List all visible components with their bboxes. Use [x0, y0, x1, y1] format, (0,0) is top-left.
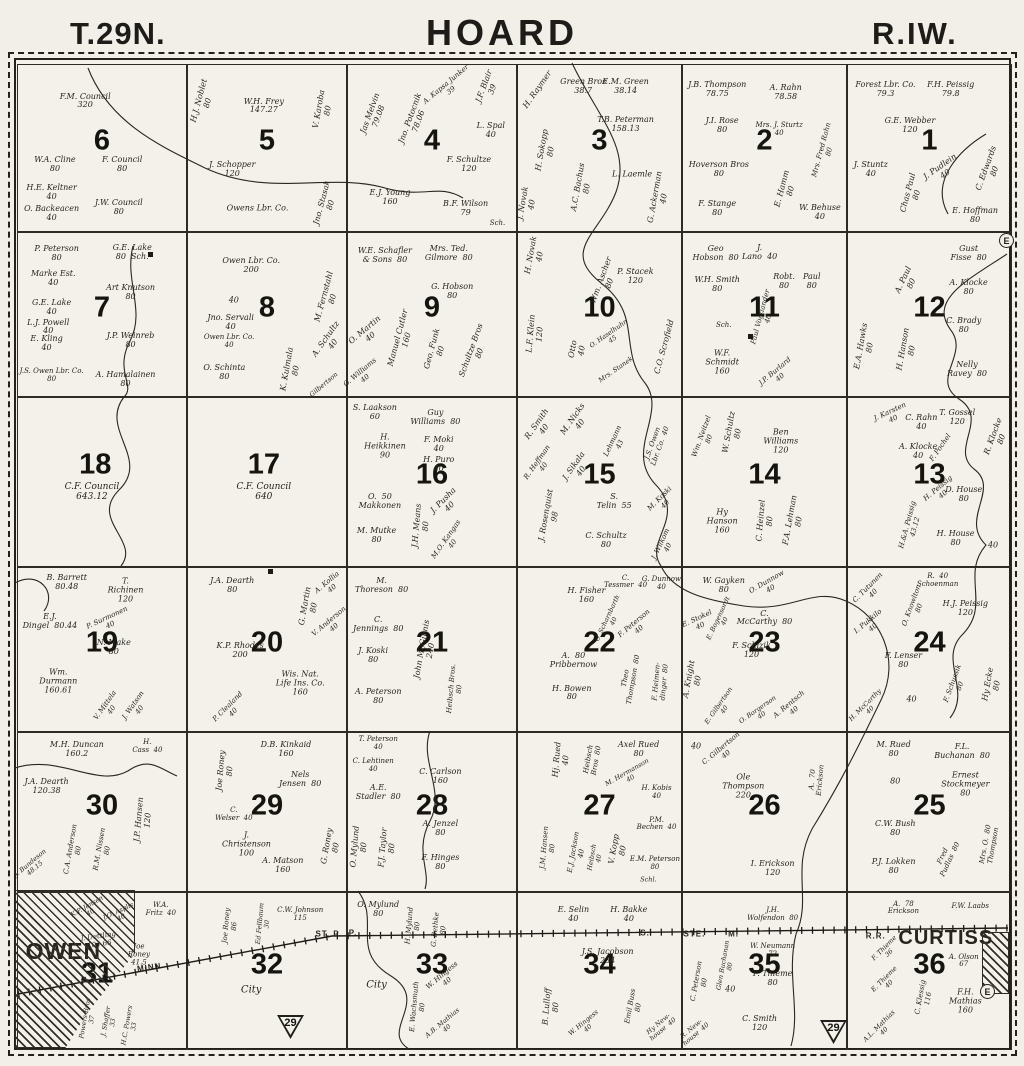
parcel-label: 40	[988, 541, 998, 550]
parcel-label: C. Peterson 80	[690, 960, 712, 1003]
parcel-label: F. Hinges 80	[421, 854, 459, 872]
section-12: 12Gust Fisse 80A. Klocke 80A. Paul 80E.A…	[847, 232, 1012, 397]
section-number: 26	[748, 791, 780, 820]
parcel-label: P.M. Bechen 40	[637, 817, 677, 833]
map-label: M.	[728, 931, 739, 940]
parcel-label: Heibsch Bros. 80	[446, 663, 466, 714]
parcel-label: J.A. Dearth 80	[210, 577, 254, 595]
school-marker	[268, 569, 273, 574]
parcel-label: D. House 80	[945, 486, 982, 504]
highway-number: 29	[820, 1022, 847, 1034]
parcel-label: C. Welser 40	[215, 807, 252, 823]
parcel-label: C. Rahn 40	[905, 414, 937, 432]
parcel-label: G. Ackerman 40	[646, 170, 673, 225]
parcel-label: H. Fisher 160	[567, 587, 605, 605]
parcel-label: G. Roney 80	[320, 827, 344, 866]
parcel-label: Nelly Ravey 80	[947, 361, 987, 379]
section-number: 17	[248, 451, 280, 480]
section-number: 6	[94, 127, 110, 156]
parcel-label: Ben Williams 120	[763, 428, 798, 455]
section-number: 11	[749, 293, 780, 322]
parcel-label: City	[241, 984, 262, 995]
parcel-label: R. Smith 40	[523, 407, 558, 446]
parcel-label: A. Schultz 40	[311, 320, 349, 364]
parcel-label: T. Gossel 120	[939, 409, 975, 427]
parcel-label: J. Stuntz 40	[854, 161, 888, 179]
parcel-label: Wis. Nat. Life Ins. Co. 160	[276, 670, 325, 697]
section-number: 12	[913, 293, 945, 322]
parcel-label: V. Mittela 40	[93, 690, 125, 727]
parcel-label: E. Kling 40	[30, 335, 62, 353]
highway-29-shield: 29	[277, 1015, 304, 1039]
section-number: 9	[424, 293, 440, 322]
parcel-label: G.E. Lake 40	[32, 299, 71, 317]
section-20: 20J.A. Dearth 80G. Martin 80A. Kollia 40…	[187, 567, 347, 732]
parcel-label: O. Williams 40	[343, 358, 384, 396]
parcel-label: Jas Melvin 79.08	[359, 92, 390, 138]
section-23: 23W. Gayken 80O. Dunnow 40C. McCarthy 80…	[682, 567, 847, 732]
parcel-label: H.E. Keltner 40	[26, 184, 76, 202]
parcel-label: J.P. Burlard 40	[757, 356, 797, 393]
parcel-label: Guy Williams 80	[410, 409, 460, 427]
map-label: ST. P.	[315, 931, 341, 940]
section-8: 8Owen Lbr. Co. 20040Jno. Servali 40Owen …	[187, 232, 347, 397]
parcel-label: W. Behuse 40	[799, 204, 841, 222]
parcel-label: A. Kapsa Junker 39	[422, 64, 476, 113]
parcel-label: F.L. Buchanan 80	[934, 743, 990, 761]
section-number: 1	[921, 127, 937, 156]
section-33: 33O. Mylund 80P.H. Mylund 80G. Bethke 80…	[347, 892, 517, 1050]
parcel-label: A. Olson 67	[949, 954, 979, 970]
section-number: 19	[86, 628, 118, 657]
parcel-label: F. Peterson 40	[617, 608, 657, 645]
parcel-label: Joe Roney 80	[215, 750, 236, 792]
section-number: 16	[416, 461, 448, 490]
parcel-label: O. Knowlton 80	[902, 584, 932, 630]
parcel-label: Lehmann 43	[603, 425, 631, 462]
parcel-label: A. Matson 160	[262, 857, 303, 875]
parcel-label: H. Sokopp 80	[535, 129, 560, 174]
parcel-label: G. Bethke 80	[431, 912, 450, 948]
parcel-label: L.F. Klein 120	[525, 314, 546, 354]
parcel-label: L.J. Powell 40	[27, 319, 69, 337]
parcel-label: Nels Jensen 80	[279, 771, 321, 789]
parcel-label: O. Mylund 80	[357, 901, 399, 919]
parcel-label: C.W. Johnson 115	[277, 907, 323, 923]
parcel-label: E. Thieme 40	[870, 965, 904, 999]
parcel-label: C. Edwards 80	[975, 145, 1008, 195]
highway-29-shield: 29	[820, 1020, 847, 1044]
section-number: 5	[259, 127, 275, 156]
section-17: 17C.F. Council 640	[187, 397, 347, 567]
parcel-label: R. New- house 40	[678, 1016, 712, 1048]
parcel-label: Owen Lbr. Co. 40	[204, 334, 254, 350]
parcel-label: M. Rued 80	[876, 741, 910, 759]
parcel-label: J.W. Council 80	[95, 199, 143, 217]
parcel-label: H.J. Peissig 120	[943, 600, 988, 618]
parcel-label: T. Richinen 120	[108, 577, 144, 604]
parcel-label: Ed Fellbaum 30	[255, 903, 273, 946]
parcel-label: Jno. Servali 40	[207, 314, 254, 332]
parcel-label: Sch.	[490, 220, 505, 228]
section-number: 7	[94, 293, 110, 322]
section-number: 29	[251, 791, 283, 820]
parcel-label: F. Schussik 80	[943, 664, 971, 707]
parcel-label: Paul 80	[803, 273, 821, 291]
parcel-label: C. Tutunen 40	[851, 571, 890, 610]
parcel-label: J.H. Means 80	[411, 503, 433, 549]
parcel-label: D.B. Kinkaid 160	[261, 741, 312, 759]
parcel-label: A. Knight 80	[682, 660, 706, 701]
school-marker	[748, 334, 753, 339]
parcel-label: G. Dunnow 40	[642, 576, 681, 592]
parcel-label: C. Smith 120	[742, 1015, 777, 1033]
section-4: 4Jas Melvin 79.08Jno. Potocnik 78.06A. K…	[347, 64, 517, 232]
edge-marker-E: E	[980, 984, 995, 999]
section-27: 27Hj. Rued 40Heibsch Bros 80Axel Rued 80…	[517, 732, 682, 892]
parcel-label: A. 70 Erickson	[807, 764, 825, 796]
section-25: 25M. Rued 80F.L. Buchanan 8080Ernest Sto…	[847, 732, 1012, 892]
parcel-label: A.C. Bachus 80	[570, 162, 596, 213]
parcel-label: H. Cass 40	[132, 739, 162, 755]
parcel-label: O. 50 Makkonen	[359, 493, 402, 511]
township-label: T.29N.	[70, 16, 166, 52]
parcel-label: H. Kobis 40	[641, 785, 671, 801]
parcel-label: 80	[890, 777, 900, 786]
parcel-label: C. Gilbertson 40	[701, 731, 747, 773]
parcel-label: C. Carlson 160	[419, 768, 461, 786]
parcel-label: Marke Est. 40	[31, 270, 76, 288]
parcel-label: Heibsch Bros 80	[583, 744, 604, 776]
parcel-label: Owen Lbr. Co. 200	[222, 257, 280, 275]
map-label: R.R.	[866, 932, 886, 941]
section-number: 14	[748, 461, 780, 490]
section-16: 16S. Laakson 60Guy Williams 80H. Heikkin…	[347, 397, 517, 567]
parcel-label: H. Bowen 80	[552, 685, 592, 703]
section-1: 1Forest Lbr. Co. 79.3F.H. Peissig 79.8G.…	[847, 64, 1012, 232]
parcel-label: J.F. Blair 39	[475, 69, 503, 107]
parcel-label: Hoverson Bros 80	[689, 161, 749, 179]
section-number: 28	[416, 791, 448, 820]
section-number: 20	[251, 628, 283, 657]
parcel-label: J. Shaffer 33	[101, 1006, 121, 1038]
parcel-label: Hy Ecke 80	[981, 667, 1005, 704]
parcel-label: J. Pudlein 40	[922, 153, 964, 190]
section-22: 22H. Fisher 160C. Tessmer 40G. Dunnow 40…	[517, 567, 682, 732]
section-number: 35	[748, 950, 780, 979]
parcel-label: V. Karoba 80	[312, 89, 336, 130]
parcel-label: B. Barrett 80.48	[47, 574, 87, 592]
parcel-label: C. Heinzel 80	[755, 499, 776, 542]
parcel-label: C.A. Anderson 80	[63, 824, 87, 877]
parcel-label: M.H. Duncan 160.2	[50, 741, 104, 759]
parcel-label: J. Wilkom 40	[651, 527, 679, 564]
parcel-label: E.M. Peterson 80	[630, 856, 680, 872]
section-18: 18C.F. Council 643.12	[17, 397, 187, 567]
parcel-label: Otto 40	[568, 340, 589, 361]
parcel-label: M. Koski 40	[647, 486, 680, 519]
parcel-label: J.B. Thompson 78.75	[688, 81, 746, 99]
parcel-label: F. Moki 40	[424, 436, 454, 454]
parcel-label: Fred Pudlas 80	[932, 838, 962, 878]
parcel-label: W.A. Fritz 40	[146, 902, 176, 918]
section-number: 3	[591, 127, 607, 156]
section-30: 30M.H. Duncan 160.2H. Cass 40J.A. Dearth…	[17, 732, 187, 892]
parcel-label: Schl.	[640, 876, 656, 883]
map-label: P.	[349, 929, 358, 938]
map-label: CURTISS	[898, 927, 993, 949]
section-5: 5H.J. Noblet 80W.H. Frey 147.27V. Karoba…	[187, 64, 347, 232]
parcel-label: E. Wachsmuth 80	[409, 981, 429, 1033]
section-28: 28T. Peterson 40C. Lehtinen 40A.E. Stadl…	[347, 732, 517, 892]
parcel-label: A. 78 Erickson	[888, 901, 919, 917]
section-number: 2	[756, 127, 772, 156]
parcel-label: H.&A. Peissig 43.12	[898, 500, 926, 551]
parcel-label: C.W. Bush 80	[875, 820, 916, 838]
parcel-label: E.M. Green 38.14	[602, 78, 649, 96]
section-13: 13J. Karsten 40C. Rahn 40T. Gossel 120A.…	[847, 397, 1012, 567]
parcel-label: C. Brady 80	[946, 317, 981, 335]
parcel-label: Mrs. Fred Rahn 80	[812, 122, 842, 180]
parcel-label: W. Schultz 80	[721, 411, 746, 456]
parcel-label: E. Hamm 80	[774, 169, 801, 210]
parcel-label: O. Borgerson 40	[738, 695, 782, 732]
parcel-label: Theo Thompson 80	[618, 653, 642, 705]
parcel-label: H. Heikkinen 90	[364, 433, 406, 460]
parcel-label: Geo Hobson 80	[692, 245, 738, 263]
parcel-label: C.F. Council 643.12	[65, 482, 120, 502]
section-7: 7P. Peterson 80G.E. Lake 80 Sch.Marke Es…	[17, 232, 187, 397]
parcel-label: C. Lehtinen 40	[353, 758, 394, 774]
parcel-label: I. Erickson 120	[751, 860, 795, 878]
parcel-label: J. Bundeson 48.15	[14, 848, 53, 884]
parcel-label: B. Lulloff 80	[542, 988, 563, 1026]
parcel-label: J.S. Owen Lbr. Co. 40	[642, 423, 671, 467]
parcel-label: H. House 80	[937, 530, 975, 548]
parcel-label: E. Selin 40	[558, 906, 589, 924]
parcel-label: Joe Roney 86	[221, 907, 240, 944]
parcel-label: Axel Rued 80	[618, 741, 659, 759]
parcel-label: F.H. Mathias 160	[949, 989, 982, 1016]
parcel-label: Glen Buchanan 80	[715, 940, 738, 992]
parcel-label: J. Novak 40	[516, 186, 539, 222]
parcel-label: 40	[906, 696, 916, 705]
parcel-label: R. Klocke 80	[983, 417, 1013, 459]
plat-map-page: T.29N. HOARD R.IW. 6F.M. Council 320W.A.…	[0, 0, 1024, 1066]
parcel-label: W. Gayken 80	[703, 577, 745, 595]
parcel-label: I. Pukkilo 40	[853, 608, 889, 642]
parcel-label: V. Kopp 80	[608, 833, 631, 866]
parcel-label: J.H. Wolfendon 80	[747, 907, 798, 923]
parcel-label: City	[366, 979, 387, 990]
section-number: 33	[416, 950, 448, 979]
parcel-label: W.E. Schafler & Sons 80	[358, 247, 412, 265]
parcel-label: Wm. Neitzel 80	[691, 415, 721, 461]
section-number: 4	[424, 127, 440, 156]
parcel-label: Owens Lbr. Co.	[227, 205, 289, 214]
parcel-label: H.C. Powers 33	[120, 1004, 141, 1046]
parcel-label: T. Peterson 40	[359, 736, 398, 752]
parcel-label: A. Rentsch 40	[773, 690, 812, 727]
parcel-label: A. Hamalainen 80	[96, 371, 156, 389]
section-number: 8	[259, 293, 275, 322]
section-2: 2J.B. Thompson 78.75A. Rahn 78.58J.I. Ro…	[682, 64, 847, 232]
parcel-label: J. Schopper 120	[209, 161, 255, 179]
parcel-label: A. Rahn 78.58	[770, 84, 802, 102]
parcel-label: Sch.	[716, 322, 731, 330]
section-number: 18	[79, 451, 111, 480]
parcel-label: F. Stange 80	[698, 200, 736, 218]
parcel-label: E.J. Jackson 40	[567, 831, 590, 875]
section-10: 10H. Novak 40Wm. Ascher 80P. Stacek 120L…	[517, 232, 682, 397]
parcel-label: E.J. Dingel 80.44	[23, 613, 78, 631]
parcel-label: H. Novak 40	[524, 236, 548, 277]
parcel-label: O. Dunnow 40	[749, 569, 791, 602]
edge-marker-E: E	[999, 233, 1014, 248]
parcel-label: W. Hingess 40	[568, 1008, 605, 1042]
parcel-label: J.S. Owen Lbr. Co. 80	[20, 369, 84, 385]
parcel-label: A.E. Stadler 80	[356, 784, 401, 802]
parcel-label: Mrs. Stanek	[597, 355, 634, 384]
section-number: 21	[416, 628, 448, 657]
section-6: 6F.M. Council 320W.A. Cline 80F. Council…	[17, 64, 187, 232]
parcel-label: H. Bakke 40	[610, 906, 647, 924]
parcel-label: Green Bros 38.7	[560, 78, 606, 96]
parcel-label: Schultze Bros 80	[458, 323, 494, 382]
parcel-label: E. Bogensordt 40	[706, 596, 739, 645]
parcel-label: J. Watson 40	[122, 690, 154, 726]
parcel-label: S. Laakson 60	[353, 404, 397, 422]
parcel-label: W.A. Cline 80	[34, 156, 75, 174]
parcel-label: M. Thoreson 80	[355, 577, 408, 595]
parcel-label: C. McCarthy 80	[737, 610, 793, 628]
parcel-label: A. Klocke 80	[949, 279, 987, 297]
parcel-label: Gust Fisse 80	[950, 245, 986, 263]
parcel-label: E.A. Hawks 80	[853, 322, 879, 371]
section-32: 32Joe Roney 86Ed Fellbaum 30C.W. Johnson…	[187, 892, 347, 1050]
parcel-label: A. Jenzel 80	[423, 820, 458, 838]
parcel-label: Geo. Funk 80	[423, 328, 451, 373]
parcel-label: F. Council 80	[102, 156, 142, 174]
parcel-label: H. McCarthy 40	[847, 688, 887, 728]
parcel-label: G. Martin 80	[297, 586, 321, 627]
parcel-label: O. Backeacen 40	[24, 205, 79, 223]
parcel-label: E.J. Young 160	[370, 189, 411, 207]
parcel-label: J.I. Rose 80	[706, 117, 739, 135]
parcel-label: Jno. Stasak 80	[313, 180, 342, 228]
parcel-label: W.H. Frey 147.27	[244, 98, 284, 116]
parcel-label: L. Spal 40	[477, 122, 505, 140]
section-number: 13	[913, 461, 945, 490]
parcel-label: P. Peterson 80	[34, 245, 78, 263]
parcel-label: W.H. Smith 80	[695, 276, 740, 294]
parcel-label: J.A. Dearth 120.38	[24, 778, 68, 796]
parcel-label: M. Fernstahl 80	[313, 271, 344, 326]
section-number: 22	[583, 628, 615, 657]
parcel-label: R. Heffman 40	[523, 444, 559, 486]
parcel-label: O. Haselhuhn 45	[588, 319, 633, 357]
parcel-label: J.P. Hansen 120	[133, 797, 155, 843]
parcel-label: Chas Paul 80	[899, 173, 927, 216]
parcel-label: E. Stokel 40	[681, 610, 717, 638]
parcel-label: R. 40 Schoenman	[917, 573, 958, 589]
parcel-label: Gilbertson	[308, 371, 339, 399]
parcel-label: C.O. Scrofield	[653, 319, 676, 375]
parcel-label: J.M. Hansen 80	[539, 826, 558, 870]
map-frame: 6F.M. Council 320W.A. Cline 80F. Council…	[14, 58, 1011, 1050]
parcel-label: A.L. Mathias 40	[862, 1009, 902, 1049]
section-number: 10	[583, 293, 615, 322]
section-number: 32	[251, 950, 283, 979]
parcel-label: Hy Hanson 160	[707, 509, 738, 536]
section-19: 19B. Barrett 80.48T. Richinen 120E.J. Di…	[17, 567, 187, 732]
section-number: 25	[913, 791, 945, 820]
map-title: HOARD	[426, 12, 578, 54]
map-label: S.	[640, 929, 650, 938]
parcel-label: J. Rosenquist 98	[537, 488, 564, 543]
parcel-label: G.E. Lake 80 Sch.	[113, 244, 152, 262]
parcel-label: Emil Buss 80	[625, 988, 647, 1025]
parcel-label: H.J. Noblet 80	[189, 78, 218, 126]
section-number: 34	[583, 950, 615, 979]
parcel-label: A.B. Mathias 40	[425, 1006, 467, 1044]
parcel-label: K. Kulmala 80	[280, 347, 305, 394]
parcel-label: C. Schultz 80	[585, 532, 626, 550]
parcel-label: P.J. Lokken 80	[872, 858, 916, 876]
parcel-label: 40	[229, 297, 239, 306]
parcel-label: S. Telin 55	[597, 493, 632, 511]
parcel-label: O. Martin 40	[348, 315, 389, 354]
section-number: 24	[913, 628, 945, 657]
section-number: 30	[86, 791, 118, 820]
parcel-label: Mrs. O. 80 Thompson	[979, 824, 1001, 866]
parcel-label: Robt. 80	[773, 273, 795, 291]
parcel-label: Mrs. Ted. Gilmore 80	[425, 245, 473, 263]
map-label: STE.	[684, 931, 706, 940]
parcel-label: F.A. Lehman 80	[782, 494, 808, 547]
school-marker	[148, 252, 153, 257]
section-11: 11Geo Hobson 80J. Lano 40W.H. Smith 80Ro…	[682, 232, 847, 397]
highway-number: 29	[277, 1017, 304, 1029]
parcel-label: W.F. Schmidt 160	[705, 350, 739, 377]
parcel-label: F.W. Laabs	[952, 903, 989, 911]
parcel-label: J. Lano 40	[742, 244, 777, 262]
parcel-label: P. Stacek 120	[617, 268, 653, 286]
section-15: 15R. Smith 40M. Nicks 40R. Heffman 40J. …	[517, 397, 682, 567]
section-34: 34E. Selin 40H. Bakke 40S.J.S. Jacobson …	[517, 892, 682, 1050]
parcel-label: Forest Lbr. Co. 79.3	[855, 81, 915, 99]
section-number: 15	[583, 461, 615, 490]
parcel-label: H. Mylund 80	[404, 906, 423, 945]
parcel-label: C.F. Council 640	[236, 482, 291, 502]
parcel-label: A. Kollia 40	[314, 570, 347, 601]
range-label: R.IW.	[872, 16, 958, 52]
parcel-label: H. Raymer	[521, 69, 553, 110]
parcel-label: 40	[725, 985, 735, 994]
parcel-label: F. Thieme 36	[871, 934, 904, 967]
parcel-label: F. Heimen- dinger 80	[652, 662, 671, 702]
parcel-label: J. Christenson 100	[222, 832, 271, 859]
parcel-label: C. Jennings 80	[353, 616, 403, 634]
parcel-label: L. Laemle	[612, 170, 652, 179]
map-label: MINN.	[136, 962, 165, 975]
parcel-label: C. Tessmer 40	[604, 575, 647, 591]
parcel-label: J. Karsten 40	[873, 402, 911, 431]
parcel-label: Heibsch 40	[587, 843, 606, 872]
parcel-label: Art Knutson 80	[106, 284, 155, 302]
parcel-label: F.H. Peissig 79.8	[927, 81, 974, 99]
parcel-label: R.M. Nissen 80	[92, 827, 115, 872]
